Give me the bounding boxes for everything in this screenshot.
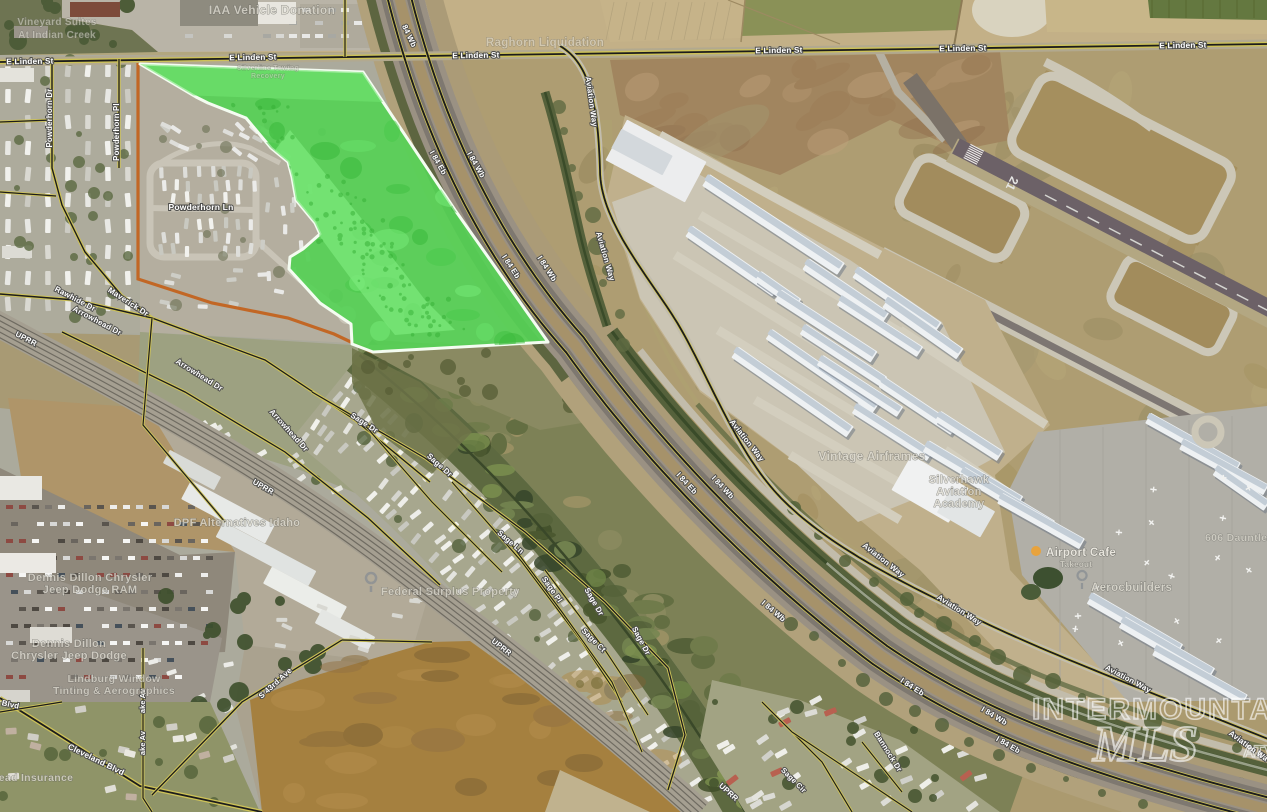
svg-text:Aviation: Aviation (936, 486, 981, 498)
svg-text:E Linden St: E Linden St (755, 46, 802, 56)
svg-text:Recovery: Recovery (251, 73, 285, 80)
svg-text:Jeep Dodge RAM: Jeep Dodge RAM (43, 584, 138, 596)
svg-text:E Linden St: E Linden St (6, 57, 53, 67)
svg-text:Powderhorn Pl: Powderhorn Pl (112, 103, 121, 161)
svg-text:606 Dauntless: 606 Dauntless (1205, 532, 1267, 544)
svg-text:MLS: MLS (1092, 717, 1198, 773)
svg-text:Raghorn Liquidation: Raghorn Liquidation (486, 37, 604, 49)
svg-text:Lindburg Window: Lindburg Window (67, 673, 161, 685)
svg-text:At Indian Creek: At Indian Creek (18, 30, 96, 41)
svg-text:Dennis Dillon Chrysler: Dennis Dillon Chrysler (28, 572, 153, 584)
svg-text:Takeout: Takeout (1060, 560, 1092, 569)
svg-text:Silverhawk: Silverhawk (929, 474, 990, 486)
svg-text:E Linden St: E Linden St (452, 51, 499, 61)
svg-text:Dennis Dillon: Dennis Dillon (32, 638, 106, 650)
svg-text:ATV: ATV (1243, 742, 1267, 761)
svg-text:Vineyard Suites: Vineyard Suites (17, 17, 96, 28)
svg-text:Vintage Airframes: Vintage Airframes (818, 449, 925, 463)
svg-text:Powderhorn Ln: Powderhorn Ln (169, 202, 234, 212)
svg-text:Powderhorn Dr: Powderhorn Dr (45, 89, 54, 148)
svg-text:E Linden St: E Linden St (1159, 41, 1206, 51)
svg-text:Academy: Academy (933, 498, 985, 510)
svg-text:Silverline Towing: Silverline Towing (237, 65, 299, 72)
svg-text:E Linden St: E Linden St (939, 44, 986, 54)
svg-text:Aerocbuilders: Aerocbuilders (1091, 582, 1172, 594)
svg-text:ead Insurance: ead Insurance (0, 772, 73, 784)
svg-text:DPF Alternatives Idaho: DPF Alternatives Idaho (174, 517, 301, 529)
svg-text:E Linden St: E Linden St (229, 53, 276, 63)
svg-text:Tinting & Aerographics: Tinting & Aerographics (53, 685, 175, 697)
svg-text:Chrysler Jeep Dodge: Chrysler Jeep Dodge (11, 650, 127, 662)
svg-text:IAA Vehicle Donation: IAA Vehicle Donation (209, 3, 335, 17)
svg-text:Federal Surplus Property: Federal Surplus Property (381, 586, 520, 598)
svg-text:ake Av: ake Av (138, 730, 147, 755)
svg-text:Airport Cafe: Airport Cafe (1046, 547, 1116, 559)
